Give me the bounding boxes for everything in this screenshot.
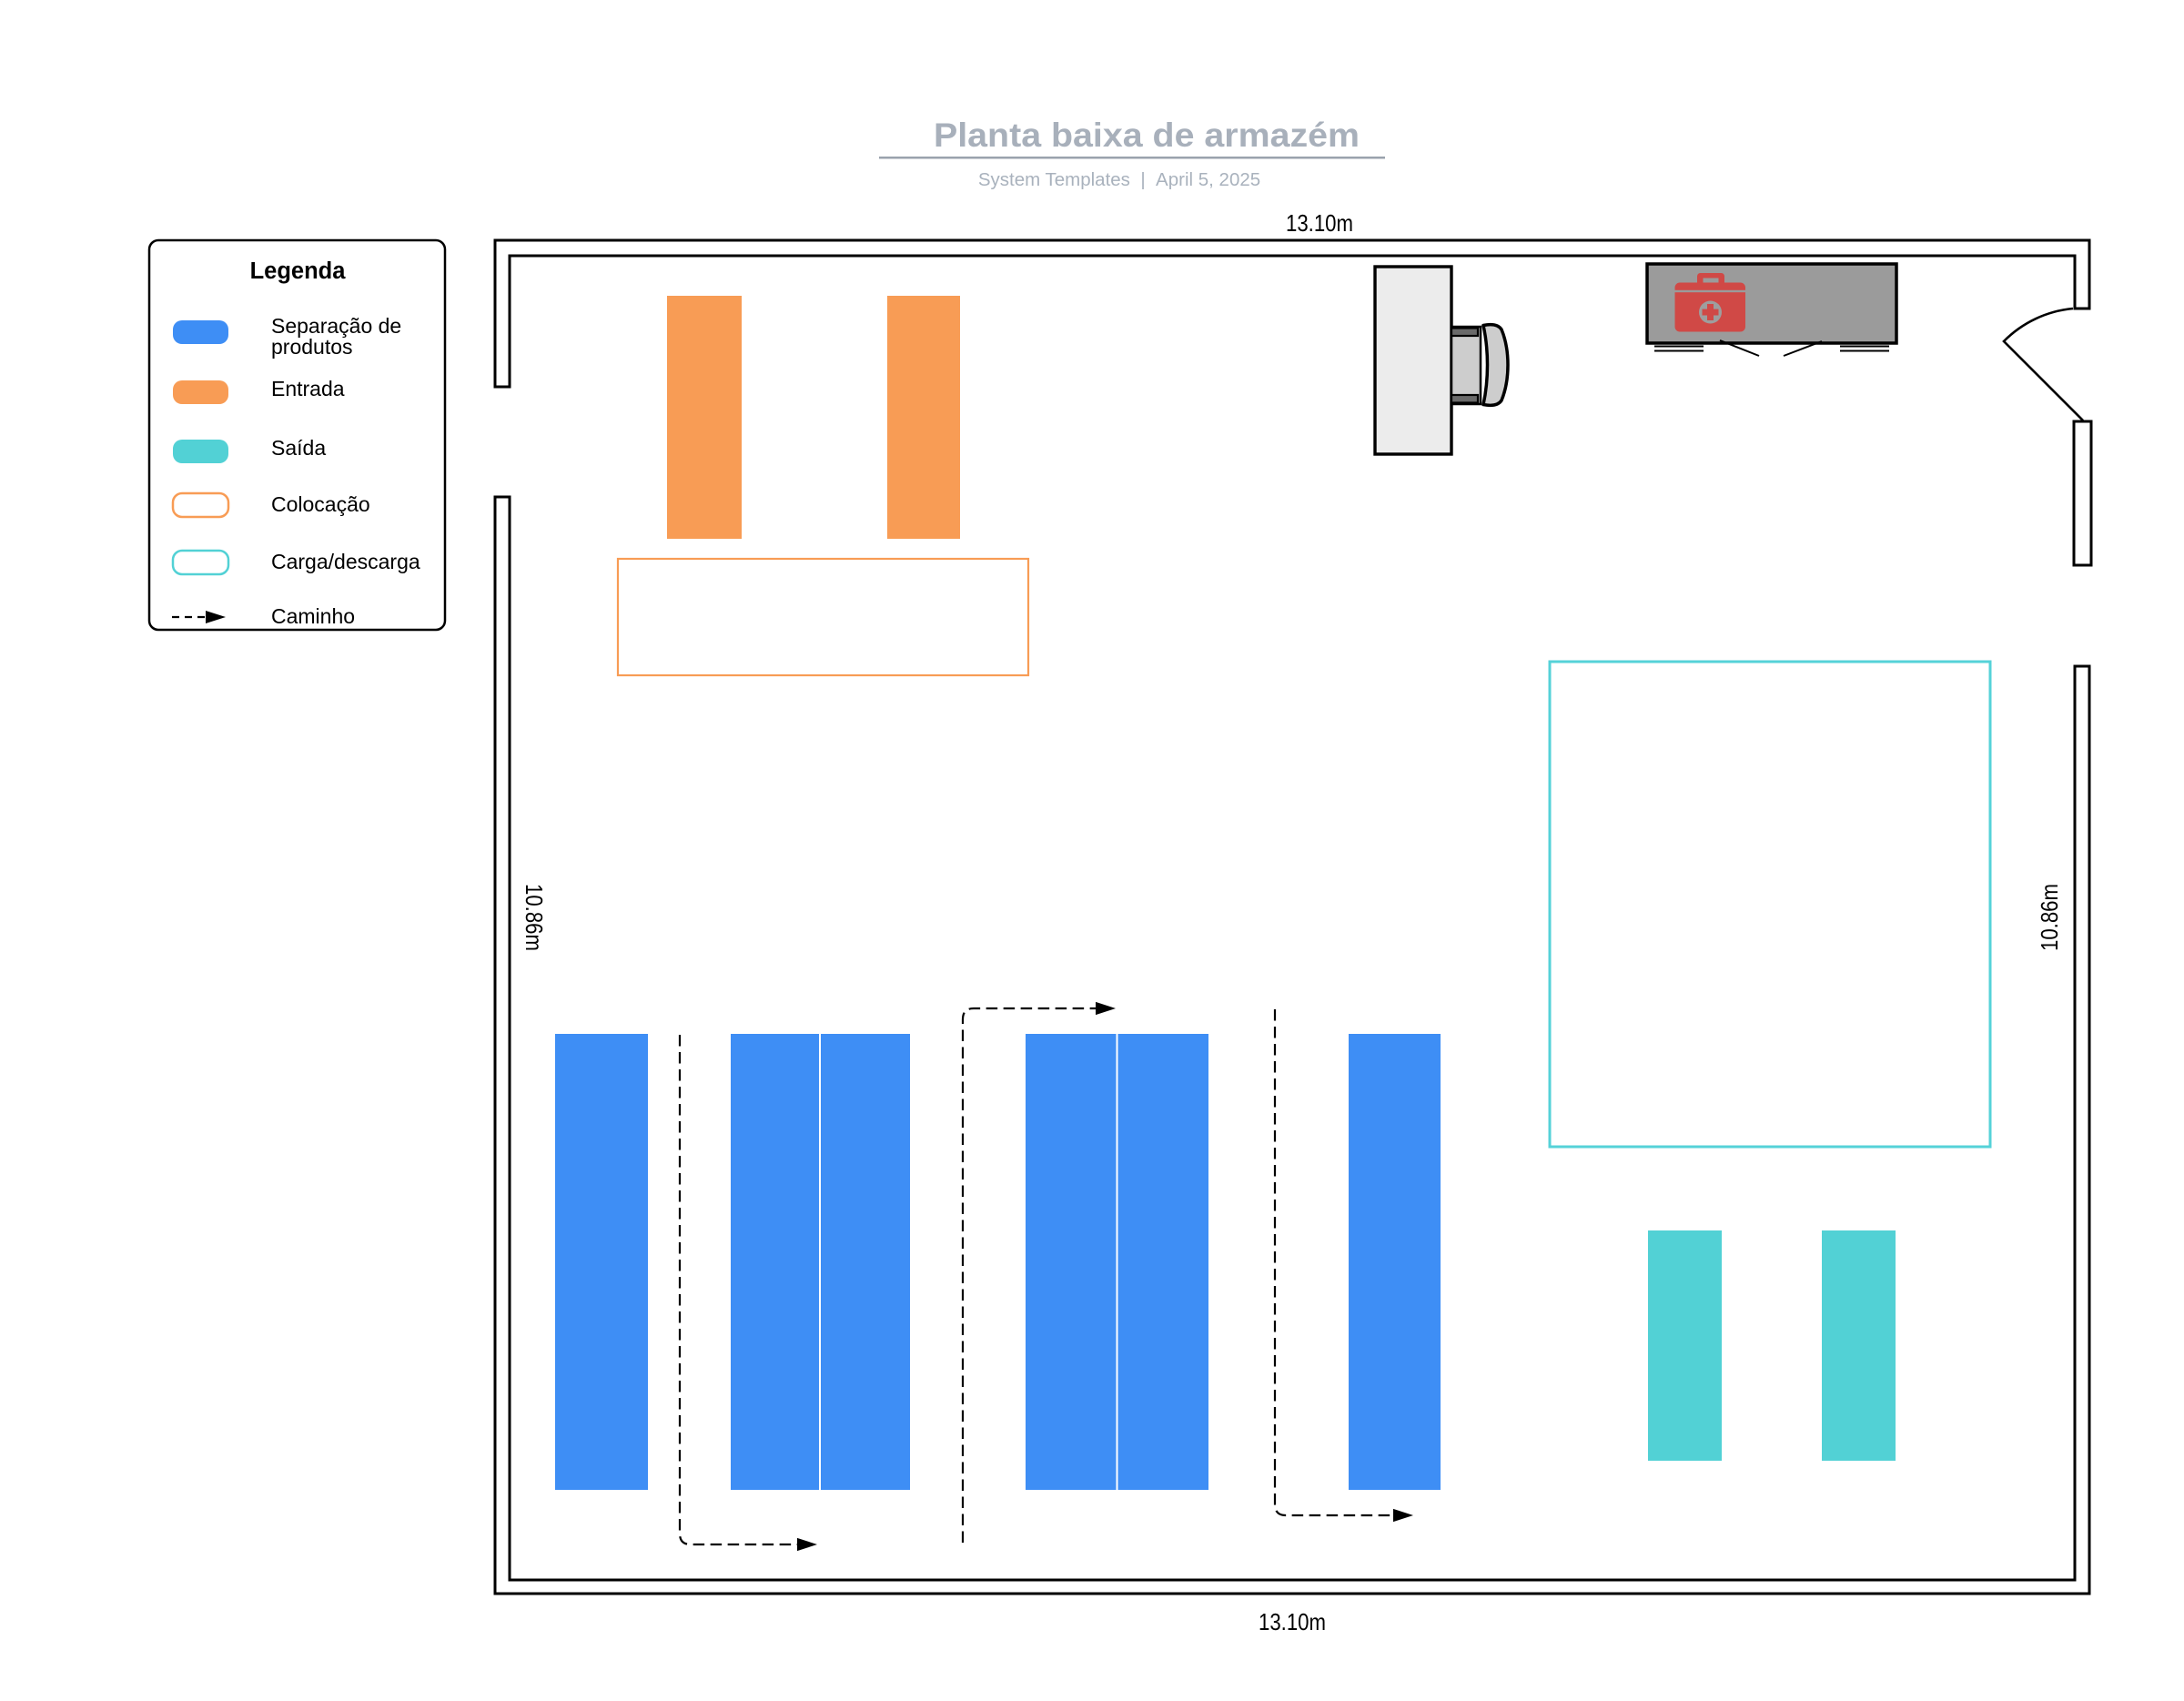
svg-text:13.10m: 13.10m — [1259, 1608, 1326, 1635]
svg-text:Saída: Saída — [271, 436, 326, 460]
svg-text:Caminho: Caminho — [271, 604, 355, 628]
svg-text:10.86m: 10.86m — [2036, 884, 2063, 951]
svg-text:Colocação: Colocação — [271, 492, 370, 516]
svg-text:Carga/descarga: Carga/descarga — [271, 550, 420, 573]
svg-text:Entrada: Entrada — [271, 377, 345, 400]
svg-text:13.10m: 13.10m — [1286, 209, 1353, 237]
svg-text:System Templates | April 5,: System Templates | April 5, 2025 — [978, 169, 1260, 190]
svg-text:produtos: produtos — [271, 335, 353, 359]
svg-text:10.86m: 10.86m — [521, 884, 548, 951]
svg-text:Planta baixa de armazém: Planta baixa de armazém — [934, 116, 1360, 154]
svg-text:Legenda: Legenda — [250, 258, 347, 284]
